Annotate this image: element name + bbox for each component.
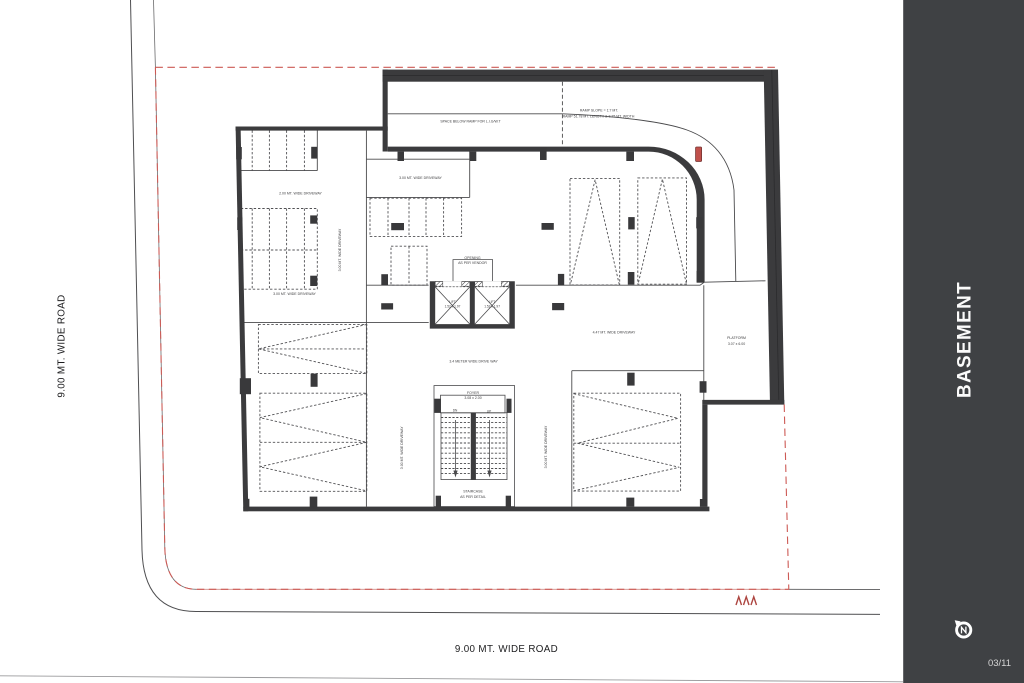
svg-text:LIFT: LIFT — [449, 300, 456, 304]
svg-text:9.00 MT. WIDE ROAD: 9.00 MT. WIDE ROAD — [57, 294, 68, 397]
svg-text:FOYER: FOYER — [467, 391, 480, 395]
svg-text:3.00 MT. WIDE DRIVEWAY: 3.00 MT. WIDE DRIVEWAY — [338, 228, 342, 271]
svg-text:RAMP SLOPE = 1:7 MT.: RAMP SLOPE = 1:7 MT. — [580, 109, 618, 113]
svg-text:2.00 MT. WIDE DRIVEWAY: 2.00 MT. WIDE DRIVEWAY — [279, 192, 322, 196]
svg-text:OPENING: OPENING — [464, 256, 480, 260]
svg-text:AS PER VENDOR: AS PER VENDOR — [458, 261, 487, 265]
svg-text:SPACE BELOW RAMP FOR L.I.G/W.T: SPACE BELOW RAMP FOR L.I.G/W.T — [440, 120, 501, 124]
svg-text:3.4 METER WIDE DRIVE WAY: 3.4 METER WIDE DRIVE WAY — [449, 359, 498, 363]
svg-text:1.52 x 1.97: 1.52 x 1.97 — [484, 305, 500, 309]
svg-text:3.08 x 2.00: 3.08 x 2.00 — [464, 396, 481, 400]
svg-text:DN: DN — [453, 409, 458, 413]
svg-text:3.00 MT. WIDE DRIVEWAY: 3.00 MT. WIDE DRIVEWAY — [544, 425, 548, 468]
svg-text:UP: UP — [487, 410, 491, 414]
svg-text:PLATFORM: PLATFORM — [727, 336, 746, 340]
svg-text:3.00 MT. WIDE DRIVEWAY: 3.00 MT. WIDE DRIVEWAY — [400, 426, 404, 469]
svg-text:RAMP 51.78 MT. LENGTH & 3.25 M: RAMP 51.78 MT. LENGTH & 3.25 MT. WIDTH — [563, 115, 635, 119]
svg-text:STAIRCASE: STAIRCASE — [463, 490, 483, 494]
svg-text:LIFT: LIFT — [489, 300, 496, 304]
svg-text:9.00 MT. WIDE ROAD: 9.00 MT. WIDE ROAD — [455, 644, 558, 655]
svg-text:AS PER DETAIL: AS PER DETAIL — [460, 495, 486, 499]
svg-text:3.00 MT. WIDE DRIVEWAY: 3.00 MT. WIDE DRIVEWAY — [399, 176, 442, 180]
svg-text:BASEMENT: BASEMENT — [954, 281, 975, 398]
svg-text:3.07 x 6.00: 3.07 x 6.00 — [728, 342, 745, 346]
svg-text:4.47 MT. WIDE DRIVEWAY: 4.47 MT. WIDE DRIVEWAY — [593, 330, 636, 334]
svg-text:1.52 x 1.97: 1.52 x 1.97 — [445, 305, 461, 309]
svg-text:3.00 MT. WIDE DRIVEWAY: 3.00 MT. WIDE DRIVEWAY — [273, 292, 316, 296]
svg-text:03/11: 03/11 — [988, 658, 1011, 669]
